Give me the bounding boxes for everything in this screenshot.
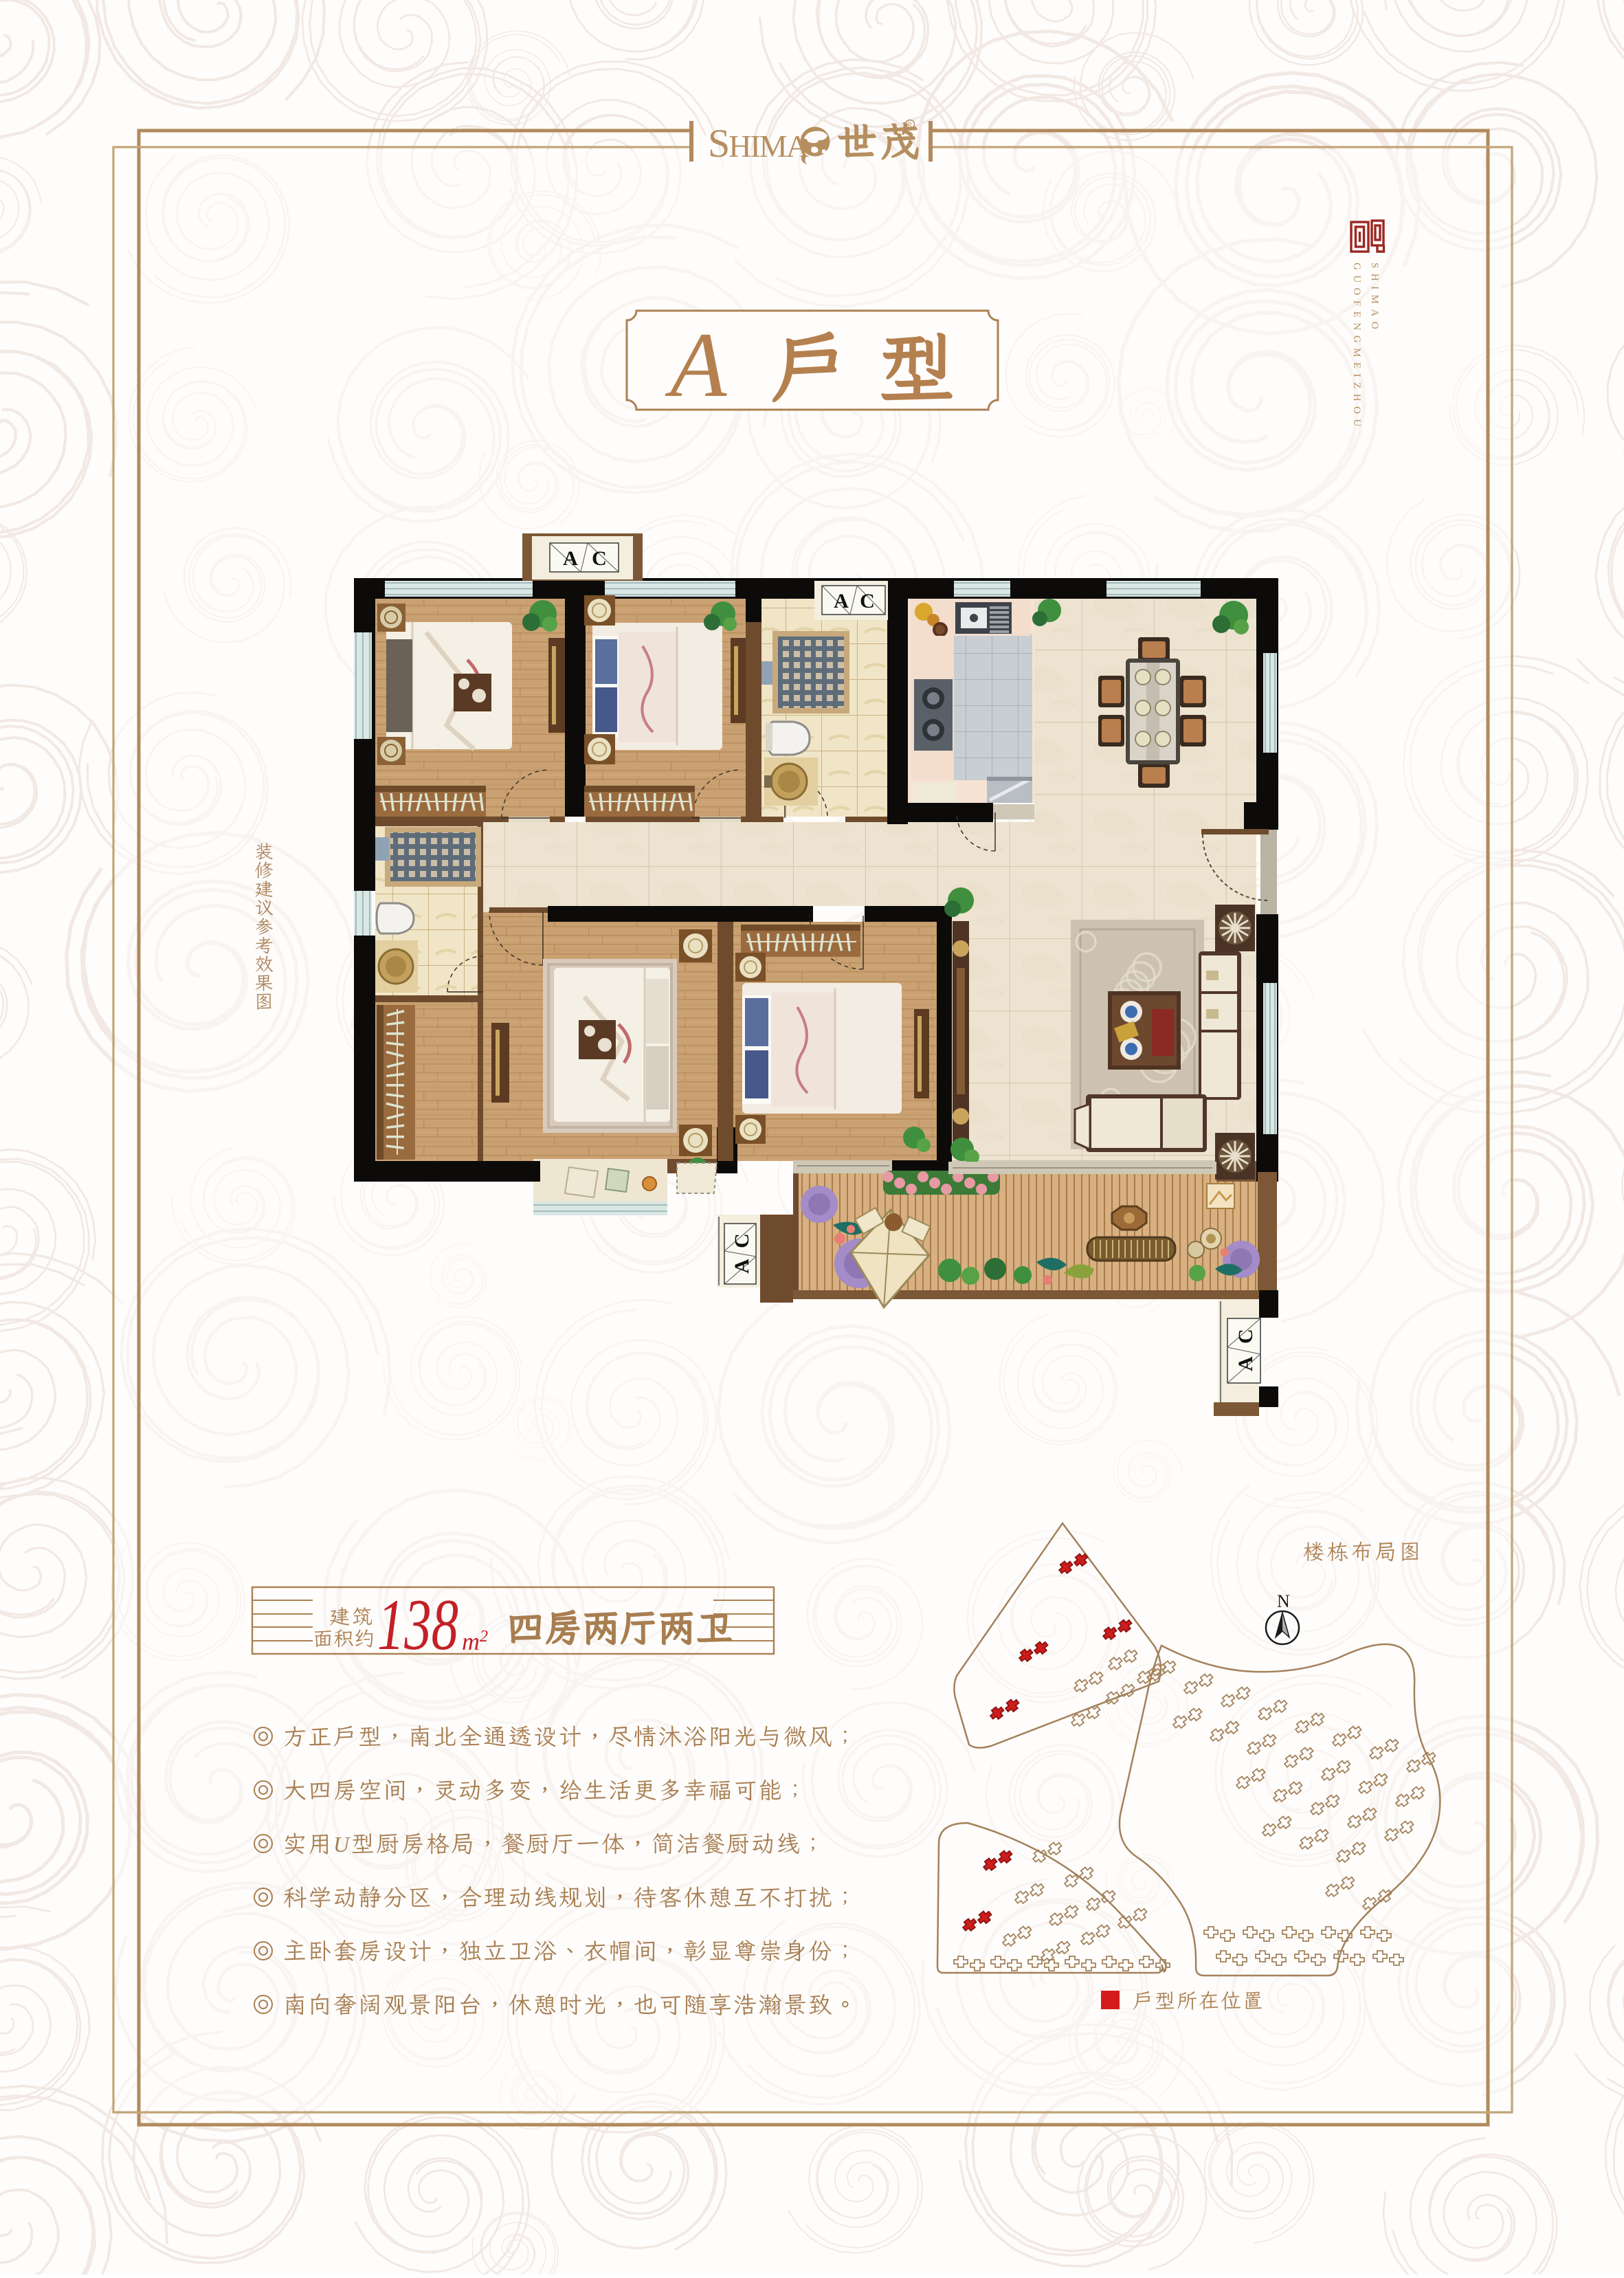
svg-text:C: C [592,547,607,570]
svg-text:A: A [834,590,849,612]
svg-text:C: C [731,1233,753,1248]
svg-text:A: A [563,547,578,570]
svg-text:SHIMAO: SHIMAO [1369,263,1380,334]
svg-text:GUOFENGMEIZHOU: GUOFENGMEIZHOU [1351,263,1362,432]
svg-text:A: A [665,314,727,417]
svg-text:A: A [731,1259,753,1274]
svg-text:N: N [1277,1591,1290,1611]
svg-text:C: C [1234,1329,1257,1344]
svg-text:A: A [1234,1356,1257,1371]
svg-text:U: U [333,1832,351,1857]
svg-text:138: 138 [377,1584,458,1665]
svg-text:C: C [860,590,875,612]
svg-text:R: R [908,122,913,129]
